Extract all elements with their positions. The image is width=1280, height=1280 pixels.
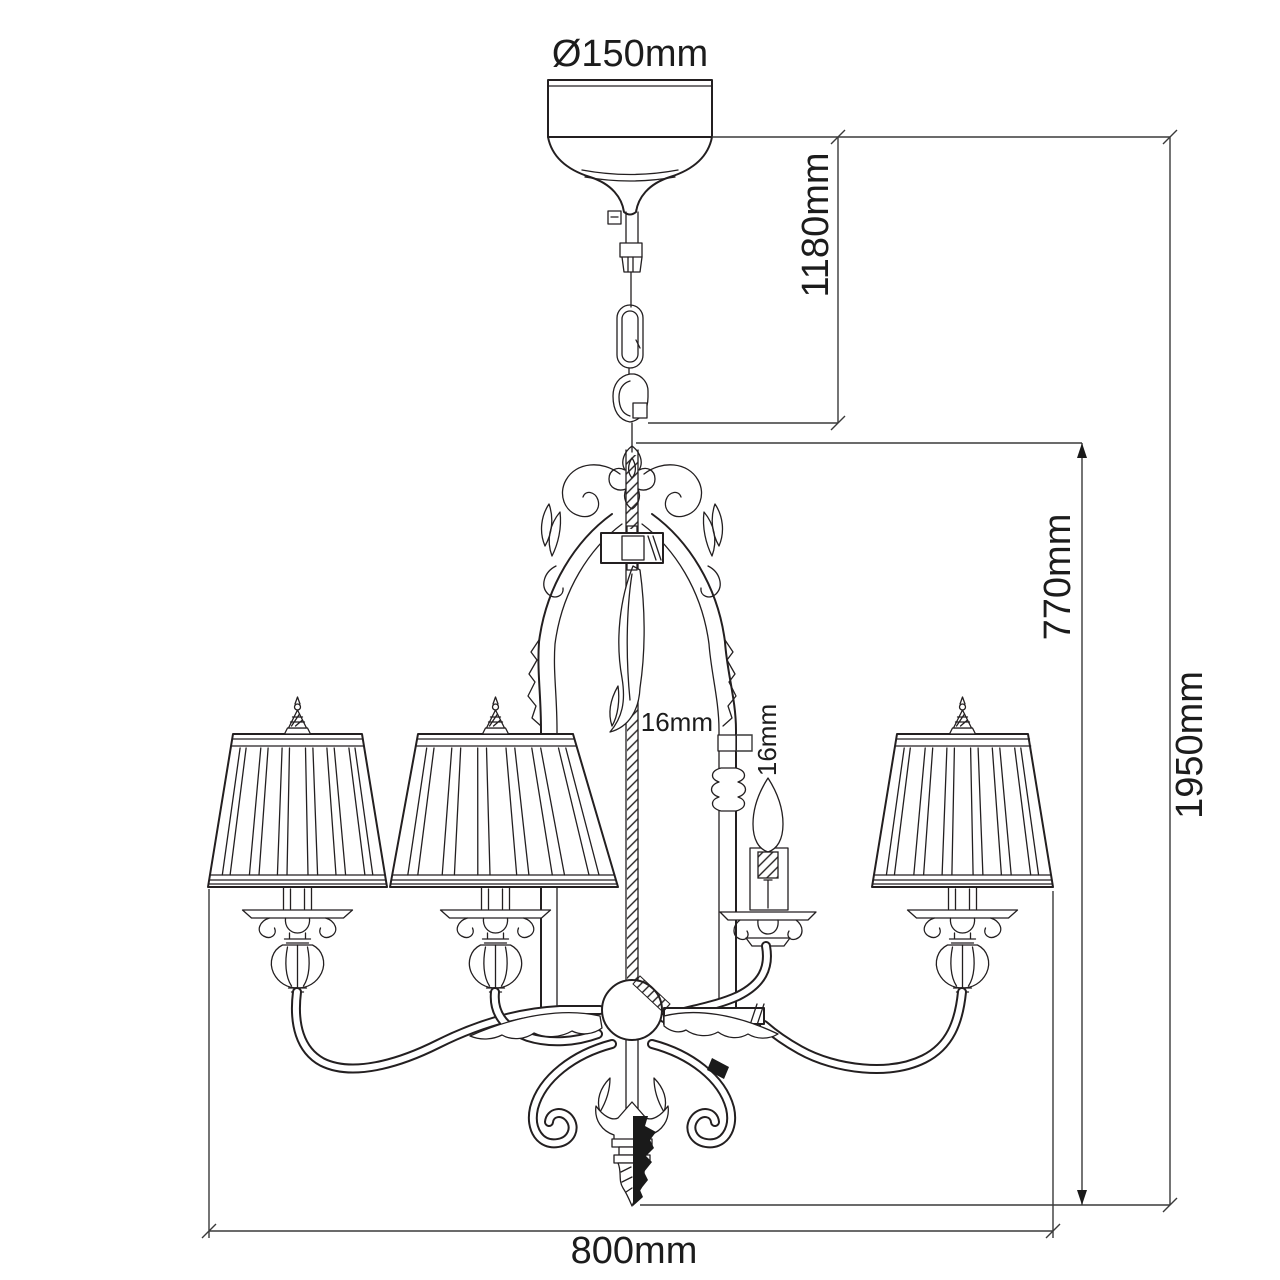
candle-diameter-label: 16mm — [752, 704, 782, 776]
candle-holder-left — [243, 887, 353, 992]
diagram-canvas: Ø150mm 1180mm 770mm 1950mm 800mm 16mm 16… — [0, 0, 1280, 1280]
candle-holder-right — [908, 887, 1018, 992]
dimension-labels: Ø150mm 1180mm 770mm 1950mm 800mm 16mm 16… — [552, 33, 1211, 1272]
stem-diameter-label: 16mm — [641, 707, 713, 737]
bottom-finial — [596, 1102, 669, 1206]
lamp-shade-left — [208, 697, 387, 887]
candle-holder-middle — [441, 887, 551, 992]
total-height-label: 1950mm — [1169, 671, 1211, 819]
chain-drop-label: 1180mm — [795, 152, 837, 297]
chandelier-dimension-diagram: Ø150mm 1180mm 770mm 1950mm 800mm 16mm 16… — [0, 0, 1280, 1280]
width-label: 800mm — [571, 1230, 698, 1272]
lamp-shade-right — [872, 697, 1053, 887]
central-hub — [470, 976, 778, 1040]
canopy-diameter-label: Ø150mm — [552, 33, 708, 75]
suspension-chain — [613, 212, 648, 422]
lamp-shade-middle — [390, 697, 618, 887]
ceiling-canopy — [548, 80, 712, 224]
body-height-label: 770mm — [1037, 514, 1079, 641]
